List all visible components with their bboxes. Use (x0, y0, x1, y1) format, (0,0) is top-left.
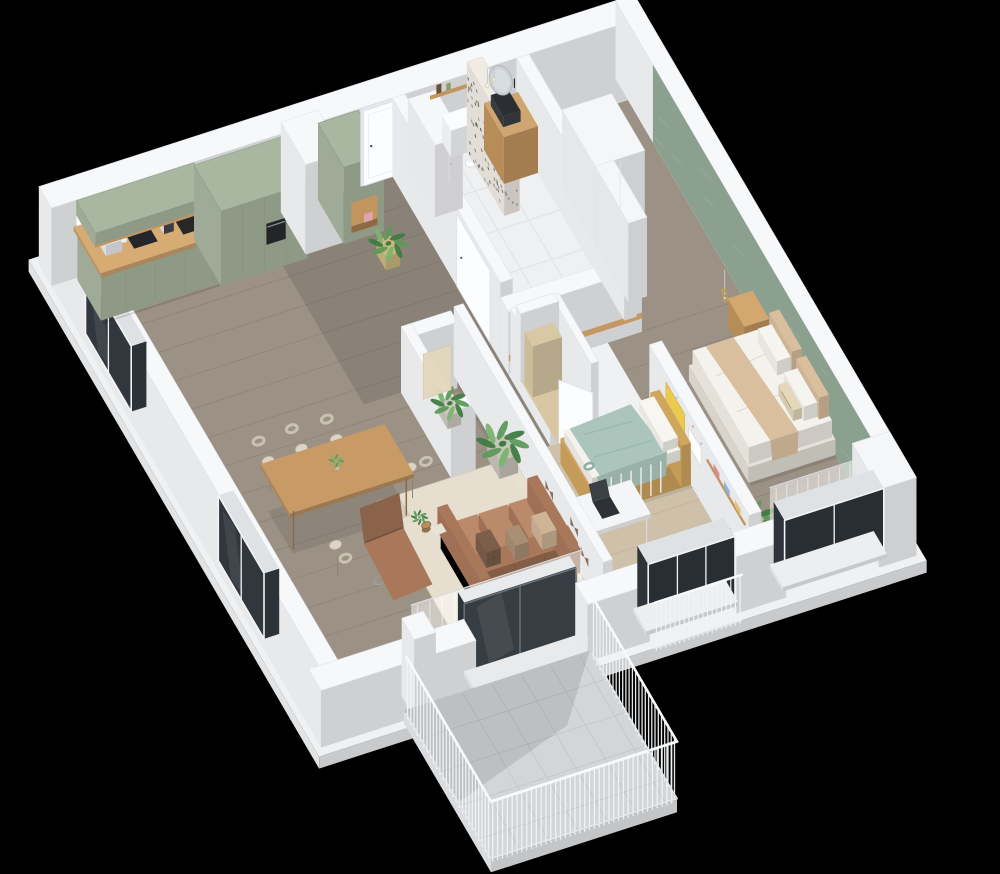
floor-plan-svg (0, 0, 1000, 874)
floor-plan-stage (0, 0, 1000, 874)
